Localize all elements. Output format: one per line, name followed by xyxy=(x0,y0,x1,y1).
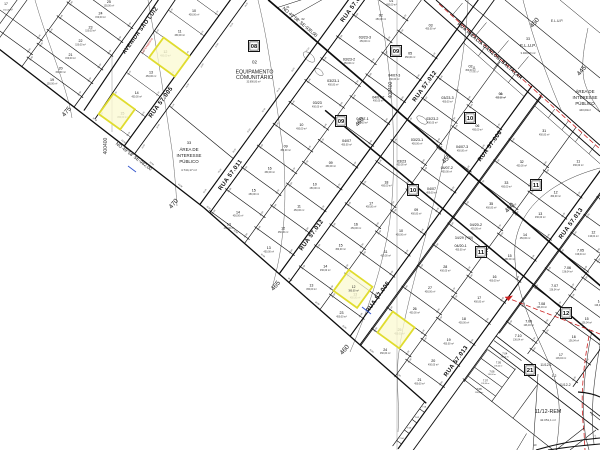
svg-text:15: 15 xyxy=(508,254,512,258)
svg-text:450,00 m²: 450,00 m² xyxy=(264,171,275,174)
svg-text:450,00 m²: 450,00 m² xyxy=(573,164,584,167)
svg-text:13: 13 xyxy=(149,71,153,75)
svg-text:E.L.U.P.: E.L.U.P. xyxy=(520,43,536,48)
svg-text:450,00 m²: 450,00 m² xyxy=(405,56,416,59)
svg-text:450,00 m²: 450,00 m² xyxy=(278,231,289,234)
svg-text:150,00 m²: 150,00 m² xyxy=(85,30,96,33)
svg-text:17.436 m²: 17.436 m² xyxy=(469,70,479,73)
svg-text:136,04 m²: 136,04 m² xyxy=(562,271,573,274)
svg-text:14: 14 xyxy=(236,210,240,214)
svg-text:42.051,1 m²: 42.051,1 m² xyxy=(540,418,556,422)
svg-text:450,00 m²: 450,00 m² xyxy=(489,279,500,282)
svg-text:16: 16 xyxy=(268,167,272,171)
svg-text:PÚBLICO: PÚBLICO xyxy=(179,159,199,164)
svg-text:19: 19 xyxy=(447,338,451,342)
svg-text:17: 17 xyxy=(4,2,8,6)
svg-text:11/12-1: 11/12-1 xyxy=(540,363,551,367)
svg-text:7.08: 7.08 xyxy=(538,302,545,306)
svg-text:12: 12 xyxy=(591,231,595,235)
svg-text:11: 11 xyxy=(533,183,540,189)
svg-text:09: 09 xyxy=(393,49,400,55)
svg-text:136,04 m²: 136,04 m² xyxy=(569,339,580,342)
svg-text:450,00 m²: 450,00 m² xyxy=(459,321,470,324)
svg-text:04/20-1: 04/20-1 xyxy=(454,244,466,248)
svg-text:450,00 m²: 450,00 m² xyxy=(425,291,436,294)
svg-text:03/23-3: 03/23-3 xyxy=(441,96,453,100)
svg-text:450,00 m²: 450,00 m² xyxy=(341,143,352,146)
svg-text:136,04 m²: 136,04 m² xyxy=(523,324,534,327)
svg-text:150,00 m²: 150,00 m² xyxy=(75,43,86,46)
svg-text:450,00 m²: 450,00 m² xyxy=(411,213,422,216)
svg-text:03/23: 03/23 xyxy=(313,101,322,105)
svg-text:24: 24 xyxy=(383,348,387,352)
svg-text:03/23-2: 03/23-2 xyxy=(343,57,355,61)
svg-text:450,00 m²: 450,00 m² xyxy=(442,101,453,104)
svg-text:7.09: 7.09 xyxy=(525,320,532,324)
svg-text:136,04 m²: 136,04 m² xyxy=(481,382,490,385)
svg-text:450,00 m²: 450,00 m² xyxy=(381,185,392,188)
svg-text:INTERESSE: INTERESSE xyxy=(177,153,202,158)
svg-text:ÁREA DE: ÁREA DE xyxy=(179,147,198,152)
svg-text:136,04 m²: 136,04 m² xyxy=(594,304,600,307)
svg-text:450,00 m²: 450,00 m² xyxy=(539,133,550,136)
svg-text:28: 28 xyxy=(443,265,447,269)
svg-text:450,00 m²: 450,00 m² xyxy=(224,227,235,230)
svg-text:136,04 m²: 136,04 m² xyxy=(588,235,599,238)
svg-text:450,00 m²: 450,00 m² xyxy=(409,312,420,315)
svg-text:09: 09 xyxy=(414,208,418,212)
svg-text:450,00 m²: 450,00 m² xyxy=(501,185,512,188)
svg-text:450,00 m²: 450,00 m² xyxy=(376,18,387,21)
svg-text:450,00 m²: 450,00 m² xyxy=(249,193,260,196)
svg-text:150,00 m²: 150,00 m² xyxy=(95,16,106,19)
svg-text:575,00 m²: 575,00 m² xyxy=(496,96,506,99)
svg-text:35: 35 xyxy=(489,202,493,206)
svg-text:02: 02 xyxy=(252,60,258,65)
svg-text:450,00 m²: 450,00 m² xyxy=(472,128,483,131)
svg-text:450,00 m²: 450,00 m² xyxy=(486,206,497,209)
svg-text:20: 20 xyxy=(59,67,63,71)
svg-text:33: 33 xyxy=(187,140,192,145)
svg-text:20: 20 xyxy=(431,359,435,363)
svg-text:18: 18 xyxy=(384,180,388,184)
svg-text:450,00 m²: 450,00 m² xyxy=(474,300,485,303)
svg-text:04/07-3: 04/07-3 xyxy=(388,74,400,78)
svg-text:19: 19 xyxy=(50,78,54,82)
svg-text:21: 21 xyxy=(418,378,422,382)
svg-text:450,00 m²: 450,00 m² xyxy=(516,164,527,167)
svg-text:450,00 m²: 450,00 m² xyxy=(414,382,425,385)
svg-text:11: 11 xyxy=(178,30,182,34)
svg-text:11: 11 xyxy=(478,250,485,256)
svg-text:34/29 (+30): 34/29 (+30) xyxy=(455,236,473,240)
svg-text:450,00 m²: 450,00 m² xyxy=(386,4,397,7)
svg-text:450,00 m²: 450,00 m² xyxy=(455,249,466,252)
svg-text:16: 16 xyxy=(493,275,497,279)
svg-text:450,00 m²: 450,00 m² xyxy=(131,96,142,99)
svg-text:136,04 m²: 136,04 m² xyxy=(575,253,586,256)
svg-text:450,00 m²: 450,00 m² xyxy=(189,14,200,17)
svg-text:150,00 m²: 150,00 m² xyxy=(3,9,13,12)
svg-text:04/07-3: 04/07-3 xyxy=(456,145,468,149)
svg-text:03: 03 xyxy=(429,23,433,27)
svg-text:450,00 m²: 450,00 m² xyxy=(360,40,371,43)
svg-text:450,00 m²: 450,00 m² xyxy=(443,342,454,345)
svg-text:150,00 m²: 150,00 m² xyxy=(104,4,115,7)
svg-text:17: 17 xyxy=(477,296,481,300)
svg-text:16: 16 xyxy=(572,335,576,339)
svg-text:3.940,00 m²: 3.940,00 m² xyxy=(521,51,536,55)
svg-text:14: 14 xyxy=(523,233,527,237)
svg-text:7.05: 7.05 xyxy=(577,248,584,252)
svg-text:21: 21 xyxy=(527,368,534,374)
svg-text:7.04: 7.04 xyxy=(502,352,508,356)
svg-text:450,00 m²: 450,00 m² xyxy=(380,255,391,258)
svg-text:1 2: 1 2 xyxy=(552,374,557,378)
svg-text:400400: 400400 xyxy=(388,81,394,98)
svg-text:22: 22 xyxy=(79,39,83,43)
svg-text:450,00 m²: 450,00 m² xyxy=(520,237,531,240)
svg-text:450,00 m²: 450,00 m² xyxy=(294,209,305,212)
svg-text:12: 12 xyxy=(563,311,569,317)
svg-text:7.08: 7.08 xyxy=(476,387,482,391)
svg-text:32.890,00 m²: 32.890,00 m² xyxy=(246,81,260,84)
svg-text:7.06: 7.06 xyxy=(489,369,495,373)
svg-text:16: 16 xyxy=(354,222,358,226)
svg-text:450,00 m²: 450,00 m² xyxy=(550,195,561,198)
svg-text:08: 08 xyxy=(251,44,258,50)
svg-text:450,00 m²: 450,00 m² xyxy=(366,206,377,209)
svg-text:11: 11 xyxy=(384,250,388,254)
svg-text:17: 17 xyxy=(559,353,563,357)
svg-text:450,00 m²: 450,00 m² xyxy=(389,78,400,81)
svg-text:09: 09 xyxy=(338,119,345,125)
svg-text:450,00 m²: 450,00 m² xyxy=(328,84,339,87)
svg-text:09: 09 xyxy=(284,145,288,149)
svg-text:450,00 m²: 450,00 m² xyxy=(373,100,384,103)
svg-text:450,00 m²: 450,00 m² xyxy=(425,28,436,31)
svg-text:13: 13 xyxy=(267,246,271,250)
svg-text:11: 11 xyxy=(297,205,301,209)
svg-text:03/23-1: 03/23-1 xyxy=(327,79,339,83)
svg-text:01: 01 xyxy=(286,5,290,9)
svg-text:02: 02 xyxy=(301,17,305,21)
svg-text:04/07: 04/07 xyxy=(427,187,436,191)
svg-text:13: 13 xyxy=(538,212,542,216)
svg-text:450,00 m²: 450,00 m² xyxy=(306,288,317,291)
svg-text:450,00 m²: 450,00 m² xyxy=(427,122,438,125)
svg-text:450,00 m²: 450,00 m² xyxy=(146,75,157,78)
svg-text:150,00 m²: 150,00 m² xyxy=(55,71,66,74)
svg-text:136,04 m²: 136,04 m² xyxy=(501,355,510,358)
svg-text:136,04 m²: 136,04 m² xyxy=(536,306,547,309)
svg-text:450,00 m²: 450,00 m² xyxy=(428,363,439,366)
svg-text:23: 23 xyxy=(89,25,93,29)
svg-text:26: 26 xyxy=(413,307,417,311)
svg-text:11: 11 xyxy=(576,160,580,164)
svg-text:03/23-2: 03/23-2 xyxy=(426,117,438,121)
svg-text:450,00 m²: 450,00 m² xyxy=(412,143,423,146)
svg-text:450,00 m²: 450,00 m² xyxy=(344,62,355,65)
svg-text:04/20-2: 04/20-2 xyxy=(470,223,482,227)
svg-text:06: 06 xyxy=(475,124,479,128)
svg-text:400400: 400400 xyxy=(103,137,109,154)
svg-text:7.10: 7.10 xyxy=(515,334,522,338)
svg-text:11/12-2: 11/12-2 xyxy=(559,383,570,387)
svg-text:136,04 m²: 136,04 m² xyxy=(556,357,567,360)
svg-text:450,00 m²: 450,00 m² xyxy=(335,248,346,251)
svg-text:INTERESSE: INTERESSE xyxy=(573,95,598,100)
svg-text:10: 10 xyxy=(399,229,403,233)
svg-text:14: 14 xyxy=(135,91,139,95)
svg-text:03/23-3: 03/23-3 xyxy=(359,36,371,40)
svg-text:10: 10 xyxy=(410,188,416,194)
svg-text:03/23: 03/23 xyxy=(397,159,406,163)
svg-text:136,04 m²: 136,04 m² xyxy=(549,288,560,291)
svg-text:450,00 m²: 450,00 m² xyxy=(442,171,453,174)
svg-text:05: 05 xyxy=(408,52,412,56)
svg-text:10: 10 xyxy=(299,123,303,127)
svg-text:450,00 m²: 450,00 m² xyxy=(264,251,275,254)
svg-text:12: 12 xyxy=(281,226,285,230)
svg-text:31: 31 xyxy=(542,129,546,133)
svg-text:E.L.U.P.: E.L.U.P. xyxy=(551,19,563,23)
svg-text:450,00 m²: 450,00 m² xyxy=(174,34,185,37)
svg-text:450,00 m²: 450,00 m² xyxy=(426,192,437,195)
svg-text:136,04 m²: 136,04 m² xyxy=(581,322,592,325)
svg-text:7.07: 7.07 xyxy=(483,378,489,382)
svg-text:150,00 m²: 150,00 m² xyxy=(65,57,76,60)
svg-text:01: 01 xyxy=(389,0,393,3)
svg-text:15: 15 xyxy=(339,243,343,247)
svg-text:380,00 m²: 380,00 m² xyxy=(348,289,359,292)
svg-text:7.07: 7.07 xyxy=(551,284,558,288)
svg-text:450,00 m²: 450,00 m² xyxy=(396,234,407,237)
svg-text:09: 09 xyxy=(329,161,333,165)
svg-text:10: 10 xyxy=(467,116,473,122)
svg-text:450,00 m²: 450,00 m² xyxy=(396,164,407,167)
svg-text:15: 15 xyxy=(252,188,256,192)
svg-text:23: 23 xyxy=(340,311,344,315)
svg-text:25: 25 xyxy=(107,0,111,4)
svg-text:136,04 m²: 136,04 m² xyxy=(494,364,503,367)
svg-text:33: 33 xyxy=(499,92,503,96)
svg-text:450,00 m²: 450,00 m² xyxy=(233,215,244,218)
svg-text:18: 18 xyxy=(462,317,466,321)
svg-text:14: 14 xyxy=(323,264,327,268)
svg-text:02: 02 xyxy=(379,14,383,18)
svg-text:32: 32 xyxy=(520,160,524,164)
svg-text:136,04 m²: 136,04 m² xyxy=(488,373,497,376)
svg-text:11: 11 xyxy=(472,66,476,70)
svg-text:450,00 m²: 450,00 m² xyxy=(471,227,482,230)
svg-text:17: 17 xyxy=(369,201,373,205)
svg-text:21: 21 xyxy=(69,53,73,57)
svg-text:450,00 m²: 450,00 m² xyxy=(336,315,347,318)
svg-text:33: 33 xyxy=(504,181,508,185)
svg-text:04/07-2: 04/07-2 xyxy=(441,166,453,170)
svg-text:7.05: 7.05 xyxy=(496,361,502,365)
svg-text:10: 10 xyxy=(192,9,196,13)
svg-text:33: 33 xyxy=(526,37,530,41)
svg-text:450,00 m²: 450,00 m² xyxy=(440,270,451,273)
svg-text:ÁREA DE: ÁREA DE xyxy=(575,89,594,94)
svg-text:450,00 m²: 450,00 m² xyxy=(325,165,336,168)
svg-text:136,04 m²: 136,04 m² xyxy=(513,339,524,342)
svg-text:10: 10 xyxy=(313,183,317,187)
svg-text:450,00 m²: 450,00 m² xyxy=(535,216,546,219)
svg-text:03/23-1: 03/23-1 xyxy=(411,138,423,142)
svg-text:450,00 m²: 450,00 m² xyxy=(310,187,321,190)
svg-text:4.744,17 m²: 4.744,17 m² xyxy=(181,168,197,172)
svg-text:12: 12 xyxy=(352,285,356,289)
svg-text:11/12-REM: 11/12-REM xyxy=(535,409,562,415)
svg-text:13: 13 xyxy=(309,284,313,288)
svg-text:PÚBLICO: PÚBLICO xyxy=(575,101,595,106)
svg-text:13: 13 xyxy=(227,223,231,227)
svg-text:450,00 m²: 450,00 m² xyxy=(457,149,468,152)
svg-text:02: 02 xyxy=(455,88,459,92)
svg-text:27: 27 xyxy=(428,286,432,290)
svg-text:440,00m²: 440,00m² xyxy=(579,108,591,112)
svg-text:04/07-2: 04/07-2 xyxy=(372,95,384,99)
svg-text:24: 24 xyxy=(99,12,103,16)
svg-text:12: 12 xyxy=(554,191,558,195)
svg-text:04/07: 04/07 xyxy=(342,139,351,143)
svg-text:150,00 m²: 150,00 m² xyxy=(47,83,58,86)
svg-text:450,00 m²: 450,00 m² xyxy=(320,269,331,272)
svg-text:450,00 m²: 450,00 m² xyxy=(504,258,515,261)
svg-text:7.06: 7.06 xyxy=(564,266,571,270)
svg-text:450,00 m²: 450,00 m² xyxy=(380,352,391,355)
svg-text:450,00 m²: 450,00 m² xyxy=(280,149,291,152)
svg-text:450,00 m²: 450,00 m² xyxy=(351,227,362,230)
svg-text:15: 15 xyxy=(585,317,589,321)
svg-text:450,00 m²: 450,00 m² xyxy=(296,127,307,130)
svg-text:450,00 m²: 450,00 m² xyxy=(312,105,323,108)
